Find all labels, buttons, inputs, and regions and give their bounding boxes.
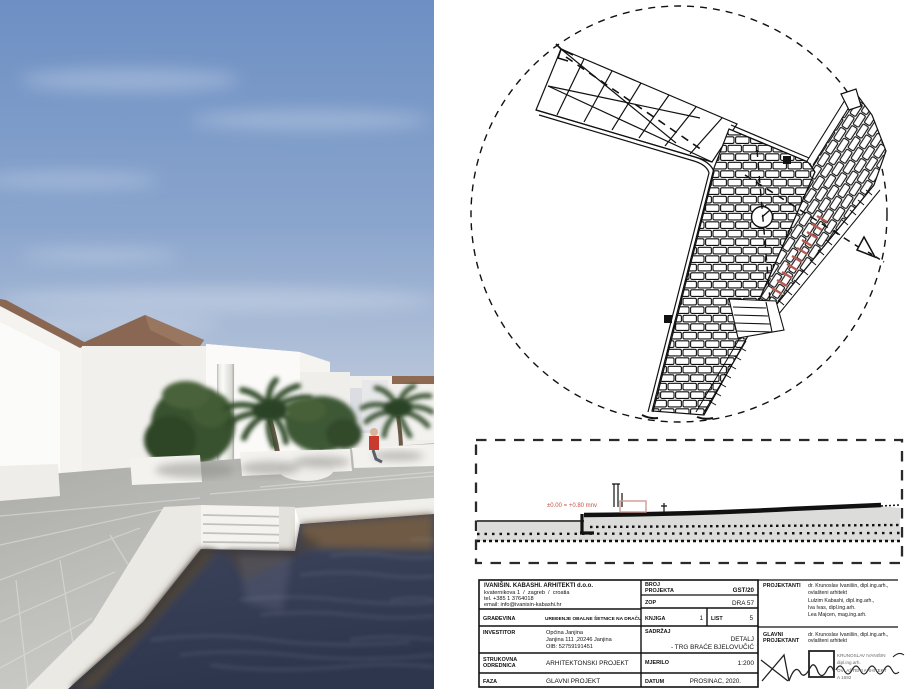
svg-text:email: info@ivanisin-kabashi.h: email: info@ivanisin-kabashi.hr xyxy=(484,602,562,608)
svg-text:Janjina 111 ,20246 Janjina: Janjina 111 ,20246 Janjina xyxy=(546,637,613,643)
svg-text:dr. Krunoslav Ivanišin, dipl.i: dr. Krunoslav Ivanišin, dipl.ing.arh., xyxy=(808,583,888,589)
svg-text:PROJEKTANT: PROJEKTANT xyxy=(763,638,800,644)
svg-text:KNJIGA: KNJIGA xyxy=(645,616,665,622)
svg-text:ZOP: ZOP xyxy=(645,600,656,606)
svg-text:1:200: 1:200 xyxy=(737,660,754,667)
svg-text:ARHITEKTONSKI PROJEKT: ARHITEKTONSKI PROJEKT xyxy=(546,660,629,667)
svg-text:DATUM: DATUM xyxy=(645,679,665,685)
svg-text:- TRG BRAĆE BJELOVUČIĆ: - TRG BRAĆE BJELOVUČIĆ xyxy=(671,642,754,651)
svg-text:GST/20: GST/20 xyxy=(733,587,755,594)
svg-text:MJERILO: MJERILO xyxy=(645,660,669,666)
svg-text:ODREDNICA: ODREDNICA xyxy=(483,663,516,669)
svg-text:KRUNOSLAV IVANIŠIN: KRUNOSLAV IVANIŠIN xyxy=(837,652,886,658)
svg-text:ovlašteni arhitekt: ovlašteni arhitekt xyxy=(808,590,847,596)
svg-text:DRA 57: DRA 57 xyxy=(732,600,754,607)
svg-text:±0.00 = +0.80 mnv: ±0.00 = +0.80 mnv xyxy=(547,503,597,509)
svg-text:PROSINAC, 2020.: PROSINAC, 2020. xyxy=(690,678,742,685)
svg-text:INVESTITOR: INVESTITOR xyxy=(483,630,515,636)
svg-text:GRAĐEVINA: GRAĐEVINA xyxy=(483,616,515,622)
svg-text:SADRŽAJ: SADRŽAJ xyxy=(645,627,670,635)
svg-text:Lulzim Kabashi, dipl.ing.arh.,: Lulzim Kabashi, dipl.ing.arh., xyxy=(808,598,874,604)
svg-text:1: 1 xyxy=(699,615,703,622)
svg-text:DETALJ: DETALJ xyxy=(731,636,754,643)
svg-text:dipl.ing.arh.: dipl.ing.arh. xyxy=(837,660,861,665)
svg-text:5: 5 xyxy=(749,615,753,622)
svg-text:OVLAŠTENI ARHITEKT: OVLAŠTENI ARHITEKT xyxy=(837,667,887,673)
svg-text:A 1692: A 1692 xyxy=(837,675,852,680)
svg-text:LIST: LIST xyxy=(711,616,723,622)
svg-text:Lea Majcen, mag.ing.arh.: Lea Majcen, mag.ing.arh. xyxy=(808,612,867,618)
svg-text:PROJEKTA: PROJEKTA xyxy=(645,588,674,594)
svg-text:Općina Janjina: Općina Janjina xyxy=(546,630,584,636)
svg-text:OIB: 52759191451: OIB: 52759191451 xyxy=(546,644,593,650)
svg-text:Iva Ivas, dipl.ing.arh.: Iva Ivas, dipl.ing.arh. xyxy=(808,605,856,611)
svg-text:ovlašteni arhitekt: ovlašteni arhitekt xyxy=(808,638,847,644)
svg-text:PROJEKTANTI: PROJEKTANTI xyxy=(763,583,801,589)
svg-text:GLAVNI PROJEKT: GLAVNI PROJEKT xyxy=(546,678,600,685)
svg-text:UREĐENJE OBALNE ŠETNICE NA DRA: UREĐENJE OBALNE ŠETNICE NA DRAČU xyxy=(545,614,642,622)
svg-text:IVANIŠIN. KABASHI. ARHITEKTI d: IVANIŠIN. KABASHI. ARHITEKTI d.o.o. xyxy=(484,581,593,589)
svg-text:FAZA: FAZA xyxy=(483,679,497,685)
